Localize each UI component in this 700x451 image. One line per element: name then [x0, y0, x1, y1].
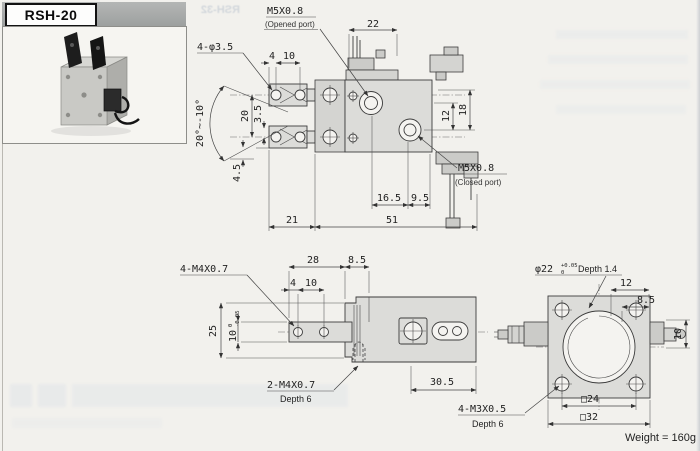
bore-circle [563, 311, 635, 383]
dim-sq24: □24 [581, 394, 599, 405]
left-fitting-barb [498, 330, 508, 339]
dim-10: 10 [305, 278, 317, 289]
arm-tongue [307, 131, 315, 143]
gripper-body-block [345, 80, 432, 152]
arm-hole [271, 90, 281, 100]
dim-4-5: 4.5 [232, 164, 243, 182]
side-holes-label: 4-M4X0.7 [180, 264, 228, 275]
dim-25: 25 [208, 325, 219, 337]
slot-hole [439, 327, 448, 336]
dim-sq32: □32 [580, 412, 598, 423]
bore-tol-upper: +0.05 [561, 263, 578, 269]
arm-hole [295, 90, 305, 100]
weight-note: Weight = 160g [625, 432, 696, 444]
dim-16-5: 16.5 [377, 193, 401, 204]
controller-knob [444, 47, 458, 55]
arm-hole [271, 132, 281, 142]
closed-port-caption: (Closed port) [455, 178, 502, 187]
dim-10: 10 [673, 328, 684, 340]
catalog-page: { "header": { "model": "RSH-20" }, "ghos… [0, 0, 700, 451]
dim-4: 4 [290, 278, 296, 289]
top-view: 20°~-10° 4-φ3.5 M5X0.8 (Opened port) M5X… [195, 6, 507, 231]
speed-controller-stem [436, 72, 446, 80]
left-fitting-hex [508, 326, 524, 343]
dim-12: 12 [441, 110, 452, 122]
angle-label: 20°~-10° [195, 99, 206, 147]
opened-port-label: M5X0.8 [267, 6, 303, 17]
angle-arc [210, 86, 224, 161]
rounded-slot [432, 322, 468, 340]
dim-3-5: 3.5 [253, 105, 264, 123]
dim-plate-tol-lower: -0.05 [235, 310, 241, 327]
dim-51: 51 [386, 215, 398, 226]
end-view: φ22 +0.05 0 Depth 1.4 12 8.5 10 □24 □ [458, 263, 690, 429]
dim-8-5: 8.5 [348, 255, 366, 266]
side-view: 4-M4X0.7 28 8.5 4 10 25 10 [180, 255, 488, 404]
valve-connector [348, 58, 374, 70]
dim-12: 12 [620, 278, 632, 289]
dim-18: 18 [458, 104, 469, 116]
wire-plug [446, 218, 460, 228]
dim-28: 28 [307, 255, 319, 266]
bore-label-main: φ22 [535, 264, 553, 275]
opened-port-caption: (Opened port) [265, 20, 315, 29]
closed-port-hole-inner [404, 124, 416, 136]
holes-label: 4-φ3.5 [197, 42, 233, 53]
speed-controller [430, 55, 463, 72]
end-tapped-depth: Depth 6 [472, 419, 504, 429]
side-tapped-label: 2-M4X0.7 [267, 380, 315, 391]
dim-30-5: 30.5 [430, 377, 454, 388]
dim-8-5: 8.5 [637, 295, 655, 306]
dim-plate-main: 10 [228, 330, 239, 342]
leader-line [525, 386, 559, 413]
leader-line [334, 366, 358, 390]
opened-port-hole-inner [365, 97, 378, 110]
dim-9-5: 9.5 [411, 193, 429, 204]
arm-hole [295, 132, 305, 142]
closed-port-label: M5X0.8 [458, 163, 494, 174]
right-fitting-body [650, 322, 664, 344]
dim-21: 21 [286, 215, 298, 226]
technical-drawing: 20°~-10° 4-φ3.5 M5X0.8 (Opened port) M5X… [0, 0, 700, 451]
leader-line [243, 53, 272, 90]
dim-22: 22 [367, 19, 379, 30]
arm-tongue [307, 89, 315, 101]
valve-plate [346, 70, 398, 80]
end-tapped-label: 4-M3X0.5 [458, 404, 506, 415]
dim-plate-thickness: 10 0 -0.05 [228, 310, 241, 342]
dim-plate-tol-upper: 0 [228, 324, 234, 327]
side-tapped-depth: Depth 6 [280, 394, 312, 404]
dim-20: 20 [240, 110, 251, 122]
leader-line [247, 275, 294, 326]
dim-10: 10 [283, 51, 295, 62]
slot-hole [453, 327, 462, 336]
left-fitting-body [524, 322, 548, 346]
bore-label-suffix: Depth 1.4 [578, 264, 617, 274]
dim-4: 4 [269, 51, 275, 62]
valve-bolt [376, 50, 385, 58]
